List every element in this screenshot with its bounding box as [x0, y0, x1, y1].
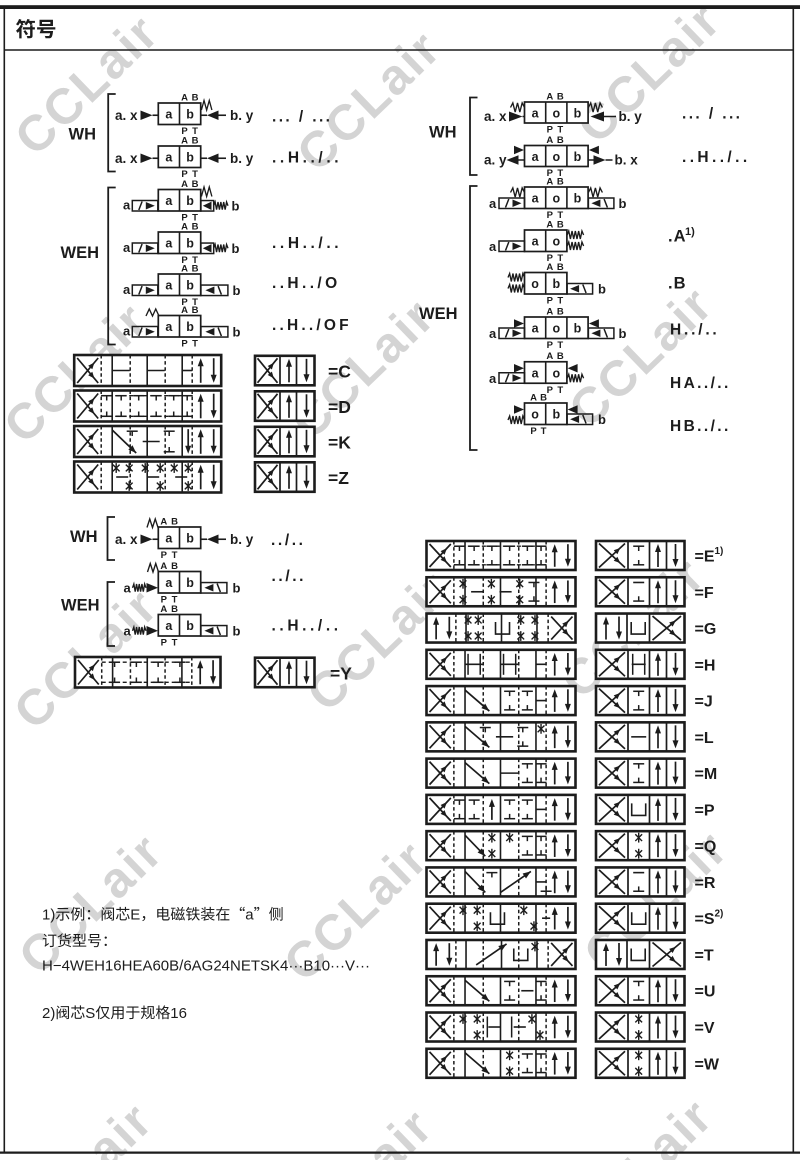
svg-text:a: a	[165, 279, 173, 293]
svg-text:a: a	[165, 194, 173, 208]
svg-text:=Z: =Z	[328, 468, 349, 488]
svg-text:a: a	[165, 532, 173, 546]
svg-text:a: a	[532, 322, 540, 336]
svg-text:B: B	[192, 93, 199, 104]
svg-text:E: E	[130, 907, 140, 924]
svg-text:P: P	[547, 125, 554, 136]
svg-text:T: T	[557, 125, 563, 136]
svg-text:o: o	[552, 150, 560, 164]
svg-text:HA../..: HA../..	[670, 375, 731, 392]
svg-text:T: T	[557, 296, 563, 307]
svg-text:a: a	[123, 198, 131, 213]
svg-text:b. y: b. y	[230, 108, 254, 123]
svg-text:b: b	[233, 580, 241, 595]
svg-text:T: T	[172, 550, 178, 561]
svg-text:T: T	[557, 385, 563, 396]
svg-text:B: B	[171, 561, 178, 572]
svg-text:2): 2)	[715, 909, 724, 920]
svg-text:a. x: a. x	[484, 109, 507, 124]
svg-text:a: a	[165, 619, 173, 633]
svg-text:b. y: b. y	[230, 151, 254, 166]
svg-text:WH: WH	[429, 124, 457, 142]
svg-text:B: B	[171, 517, 178, 528]
svg-text:=H: =H	[695, 657, 716, 674]
svg-text:b: b	[619, 196, 627, 211]
svg-text:A: A	[181, 264, 188, 275]
svg-text:=F: =F	[695, 585, 714, 602]
svg-text:A: A	[181, 136, 188, 147]
svg-text:B: B	[192, 179, 199, 190]
svg-text:T: T	[172, 638, 178, 649]
svg-text:A: A	[546, 262, 553, 273]
svg-text:a: a	[532, 150, 540, 164]
svg-text:..H../..: ..H../..	[682, 149, 751, 166]
svg-text:A: A	[181, 222, 188, 233]
svg-text:a: a	[123, 240, 131, 255]
svg-text:.A: .A	[668, 228, 687, 246]
svg-text:a: a	[532, 366, 540, 380]
svg-text:B: B	[171, 604, 178, 615]
svg-text:a: a	[489, 326, 497, 341]
svg-text:A: A	[530, 393, 537, 404]
svg-text:a: a	[165, 108, 173, 122]
svg-text:WH: WH	[69, 126, 97, 144]
svg-text:=T: =T	[695, 948, 714, 965]
svg-text:P: P	[547, 340, 554, 351]
svg-text:WEH: WEH	[61, 597, 100, 615]
svg-text:b: b	[574, 322, 582, 336]
svg-text:A: A	[160, 604, 167, 615]
svg-text:=Y: =Y	[330, 664, 352, 684]
svg-text:P: P	[530, 426, 537, 437]
svg-text:=V: =V	[695, 1020, 715, 1037]
svg-text:WH: WH	[70, 528, 98, 546]
svg-text:b: b	[232, 198, 240, 213]
svg-text:b: b	[598, 282, 606, 297]
svg-text:a: a	[165, 151, 173, 165]
svg-text:HB../..: HB../..	[670, 418, 731, 435]
svg-text:=J: =J	[695, 694, 713, 711]
svg-text:A: A	[181, 305, 188, 316]
svg-text:=L: =L	[695, 730, 714, 747]
svg-text:b. y: b. y	[230, 532, 254, 547]
svg-text:P: P	[547, 296, 554, 307]
svg-text:H../..: H../..	[670, 322, 720, 339]
svg-text:b: b	[186, 320, 194, 334]
svg-text:../..: ../..	[271, 532, 306, 549]
svg-text:A: A	[181, 179, 188, 190]
svg-text:../..: ../..	[272, 568, 307, 585]
svg-text:P: P	[547, 385, 554, 396]
svg-text:H−4WEH16HEA60B/6AG24NETSK4···B: H−4WEH16HEA60B/6AG24NETSK4···B10···V···	[42, 958, 370, 975]
svg-text:..H../O: ..H../O	[272, 275, 341, 292]
svg-text:b: b	[574, 106, 582, 120]
svg-text:1): 1)	[685, 226, 695, 238]
svg-text:A: A	[546, 135, 553, 146]
svg-text:b: b	[186, 279, 194, 293]
svg-text:B: B	[557, 92, 564, 103]
svg-text:A: A	[546, 307, 553, 318]
svg-text:=Q: =Q	[695, 839, 717, 856]
svg-text:b: b	[552, 277, 560, 291]
svg-text:a. x: a. x	[115, 151, 138, 166]
svg-text:..H../..: ..H../..	[272, 235, 342, 252]
svg-text:A: A	[546, 177, 553, 188]
svg-text:B: B	[557, 262, 564, 273]
svg-text:o: o	[552, 235, 560, 249]
svg-text:A: A	[546, 351, 553, 362]
svg-text:1): 1)	[42, 907, 55, 924]
svg-text:a: a	[124, 580, 132, 595]
svg-text:B: B	[192, 222, 199, 233]
svg-text:T: T	[541, 426, 547, 437]
svg-text:B: B	[557, 220, 564, 231]
svg-text:b: b	[232, 241, 240, 256]
svg-text:b: b	[186, 532, 194, 546]
svg-text:b: b	[233, 623, 241, 638]
svg-text:B: B	[540, 393, 547, 404]
svg-text:b: b	[574, 150, 582, 164]
svg-text:..H../..: ..H../..	[272, 618, 342, 635]
svg-text:T: T	[192, 339, 198, 350]
svg-text:P: P	[161, 638, 168, 649]
svg-text:b: b	[186, 151, 194, 165]
svg-text:b. y: b. y	[619, 109, 643, 124]
svg-text:a: a	[489, 196, 497, 211]
svg-text:b: b	[598, 412, 606, 427]
svg-text:b: b	[186, 108, 194, 122]
svg-text:=U: =U	[695, 984, 716, 1001]
svg-text:B: B	[557, 177, 564, 188]
svg-text:b: b	[574, 192, 582, 206]
svg-text:b: b	[233, 324, 241, 339]
svg-text:o: o	[552, 106, 560, 120]
svg-text:a: a	[165, 576, 173, 590]
svg-text:... / ...: ... / ...	[272, 109, 332, 126]
svg-text:a: a	[123, 324, 131, 339]
svg-text:B: B	[192, 305, 199, 316]
svg-text:b: b	[619, 326, 627, 341]
svg-text:a. x: a. x	[115, 532, 138, 547]
svg-text:=S: =S	[695, 911, 715, 928]
svg-text:WEH: WEH	[419, 305, 458, 323]
svg-text:.B: .B	[668, 275, 687, 293]
svg-text:P: P	[181, 339, 188, 350]
svg-text:=W: =W	[695, 1056, 720, 1073]
svg-text:=G: =G	[695, 621, 717, 638]
svg-text:A: A	[546, 220, 553, 231]
svg-text:b. x: b. x	[615, 153, 639, 168]
svg-text:b: b	[186, 619, 194, 633]
svg-text:=K: =K	[328, 433, 351, 453]
svg-text:S: S	[85, 1005, 95, 1022]
svg-text:o: o	[552, 322, 560, 336]
svg-text:B: B	[557, 135, 564, 146]
svg-text:a: a	[532, 106, 540, 120]
svg-text:a: a	[489, 239, 497, 254]
svg-text:o: o	[531, 277, 539, 291]
svg-text:B: B	[192, 136, 199, 147]
svg-text:a: a	[532, 192, 540, 206]
svg-text:P: P	[161, 550, 168, 561]
svg-text:b: b	[233, 283, 241, 298]
svg-text:b: b	[186, 237, 194, 251]
svg-text:=R: =R	[695, 875, 716, 892]
svg-text:=P: =P	[695, 802, 715, 819]
svg-text:... / ...: ... / ...	[682, 106, 742, 123]
svg-text:b: b	[186, 194, 194, 208]
svg-text:o: o	[552, 192, 560, 206]
svg-text:..H../OF: ..H../OF	[272, 317, 352, 334]
svg-text:B: B	[557, 351, 564, 362]
svg-text:a: a	[123, 282, 131, 297]
svg-text:A: A	[546, 92, 553, 103]
svg-text:=D: =D	[328, 397, 351, 417]
svg-text:o: o	[552, 366, 560, 380]
svg-text:2): 2)	[42, 1005, 55, 1022]
svg-text:1): 1)	[715, 546, 724, 557]
svg-text:a. x: a. x	[115, 108, 138, 123]
svg-text:b: b	[552, 408, 560, 422]
svg-text:..H../..: ..H../..	[272, 150, 342, 167]
svg-text:WEH: WEH	[61, 244, 100, 262]
svg-text:B: B	[557, 307, 564, 318]
svg-text:=E: =E	[695, 549, 715, 566]
svg-text:a. y: a. y	[484, 153, 507, 168]
svg-text:=C: =C	[328, 362, 351, 382]
svg-text:a: a	[165, 320, 173, 334]
svg-text:T: T	[557, 340, 563, 351]
svg-text:A: A	[160, 517, 167, 528]
svg-text:16: 16	[170, 1005, 187, 1022]
svg-text:A: A	[181, 93, 188, 104]
svg-text:a: a	[165, 237, 173, 251]
svg-text:A: A	[160, 561, 167, 572]
svg-text:b: b	[186, 576, 194, 590]
svg-text:a: a	[245, 907, 254, 924]
svg-text:a: a	[124, 623, 132, 638]
svg-text:o: o	[531, 408, 539, 422]
svg-text:a: a	[532, 235, 540, 249]
svg-text:B: B	[192, 264, 199, 275]
svg-text:a: a	[489, 371, 497, 386]
svg-text:=M: =M	[695, 766, 718, 783]
